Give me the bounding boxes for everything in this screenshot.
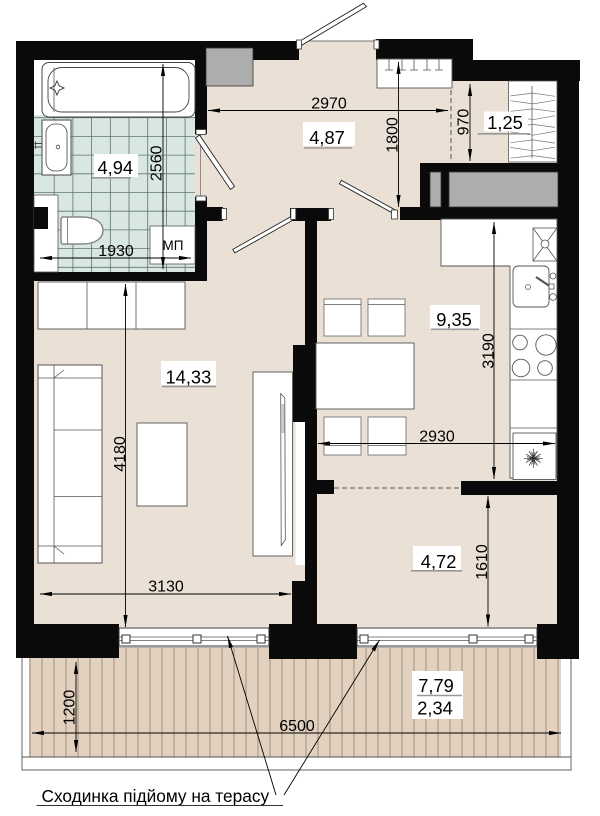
svg-text:4180: 4180 (112, 436, 129, 472)
svg-text:4,87: 4,87 (309, 127, 345, 148)
svg-text:Сходинка підйому на терасу: Сходинка підйому на терасу (42, 786, 270, 806)
svg-text:1930: 1930 (98, 243, 134, 260)
svg-text:7,79: 7,79 (418, 675, 454, 696)
svg-text:9,35: 9,35 (436, 309, 472, 330)
svg-text:2560: 2560 (148, 145, 165, 181)
svg-text:1200: 1200 (62, 690, 79, 726)
svg-text:2930: 2930 (419, 429, 455, 446)
svg-text:2,34: 2,34 (417, 698, 453, 719)
svg-text:3190: 3190 (481, 333, 498, 369)
svg-text:3130: 3130 (148, 579, 184, 596)
svg-text:1800: 1800 (384, 117, 401, 153)
svg-text:6500: 6500 (279, 718, 315, 735)
svg-text:970: 970 (456, 109, 473, 136)
svg-text:МП: МП (163, 238, 184, 253)
svg-text:4,94: 4,94 (98, 157, 134, 178)
svg-text:1,25: 1,25 (487, 112, 523, 133)
svg-text:1610: 1610 (474, 544, 491, 580)
svg-text:2970: 2970 (311, 96, 347, 113)
svg-text:4,72: 4,72 (421, 551, 457, 572)
svg-text:14,33: 14,33 (166, 367, 212, 388)
